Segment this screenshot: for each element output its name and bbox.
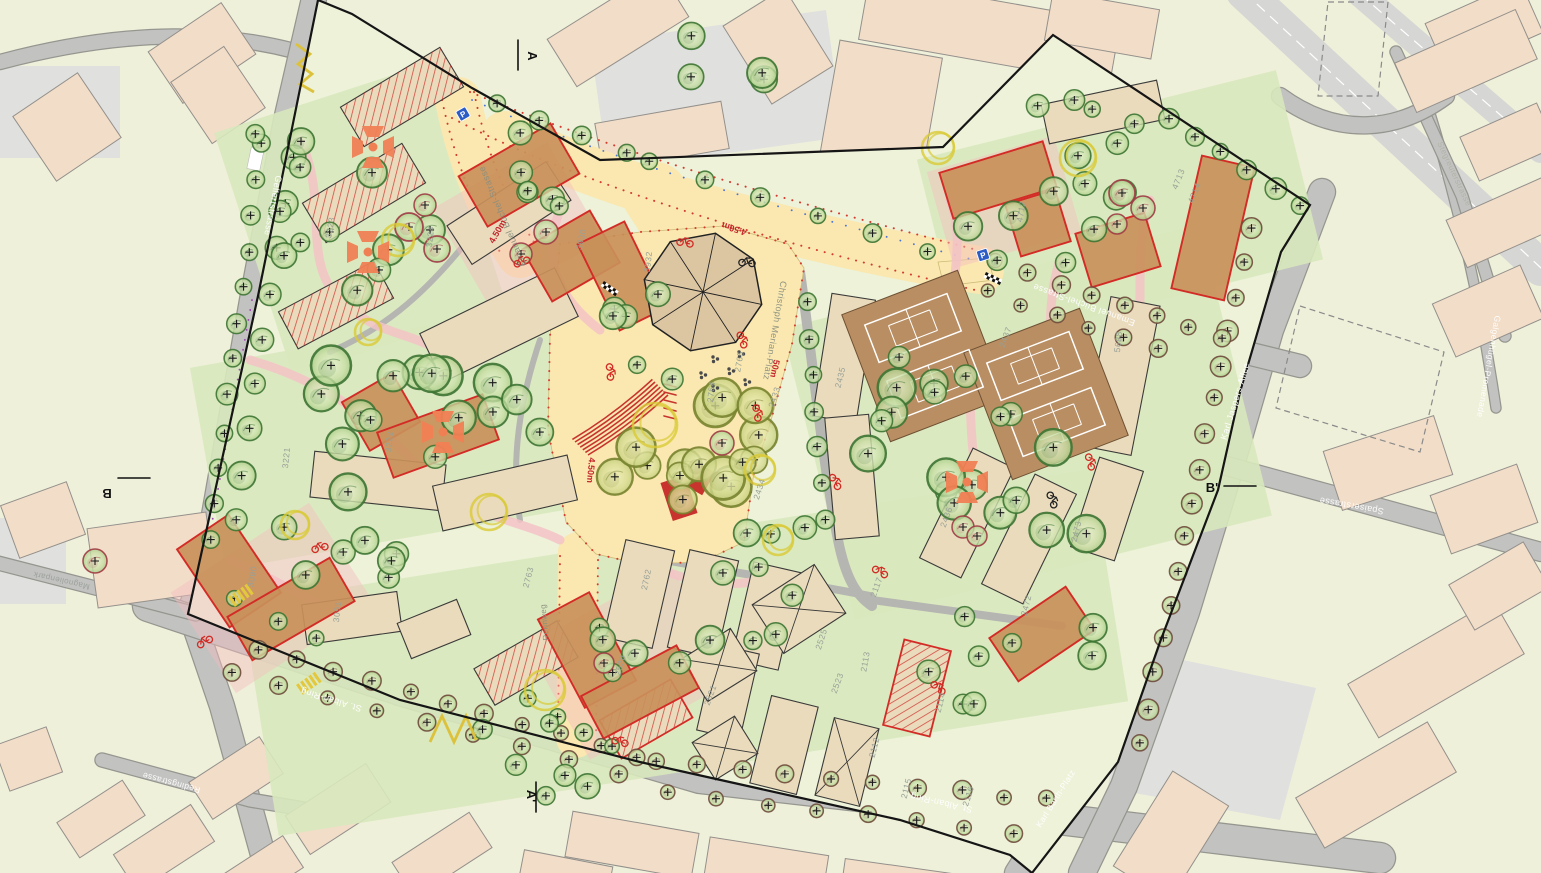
tree-icon (1084, 101, 1100, 117)
tree-icon (816, 510, 835, 529)
tree-icon (1189, 460, 1209, 480)
tree-icon (1107, 214, 1127, 234)
tree-icon (923, 381, 946, 404)
tree-icon (1079, 614, 1107, 642)
tree-icon (661, 785, 675, 799)
tree-icon (272, 515, 297, 540)
tree-icon (1106, 132, 1128, 154)
tree-icon (824, 772, 839, 787)
tree-icon (888, 346, 909, 367)
tree-icon (1078, 642, 1106, 670)
tree-icon (1003, 487, 1029, 513)
tree-icon (514, 738, 531, 755)
tree-icon (669, 485, 697, 513)
tree-icon (377, 360, 408, 391)
tree-icon (799, 293, 816, 310)
tree-icon (600, 303, 627, 330)
tree-icon (330, 473, 367, 510)
playground-center (439, 428, 448, 437)
tree-icon (805, 367, 821, 383)
playground-center (364, 248, 373, 257)
bench-dot (728, 372, 731, 375)
bench-dot (744, 383, 747, 386)
tree-icon (223, 664, 240, 681)
tree-icon (776, 765, 794, 783)
tree-icon (814, 475, 830, 491)
tree-icon (807, 436, 827, 456)
tree-shade (347, 286, 361, 300)
tree-icon (955, 607, 975, 627)
tree-shade (480, 377, 497, 394)
tree-icon (534, 220, 558, 244)
tree-icon (1082, 217, 1107, 242)
tree-icon (289, 157, 310, 178)
tree-shade (990, 508, 1004, 522)
bench-dot (704, 373, 707, 376)
tree-shade (507, 395, 520, 408)
tree-icon (1082, 322, 1095, 335)
tree-icon (962, 692, 986, 716)
tree-icon (541, 714, 559, 732)
tree-icon (917, 660, 940, 683)
tree-icon (575, 774, 600, 799)
tree-icon (669, 652, 691, 674)
tree-icon (793, 516, 816, 539)
tree-shade (709, 471, 728, 490)
tree-icon (696, 626, 725, 655)
bench-dot (699, 371, 702, 374)
tree-icon (244, 373, 265, 394)
tree-icon (969, 646, 989, 666)
tree-icon (997, 790, 1011, 804)
tree-icon (83, 549, 107, 573)
tree-shade (623, 441, 641, 459)
tree-icon (590, 627, 615, 652)
tree-shade (747, 429, 764, 446)
tree-icon (259, 283, 281, 305)
tree-icon (1026, 95, 1048, 117)
tree-shade (603, 471, 619, 487)
tree-icon (311, 345, 351, 385)
tree-icon (1214, 330, 1231, 347)
tree-icon (954, 212, 983, 241)
section-label: A (525, 51, 540, 61)
tree-icon (246, 125, 264, 143)
tree-icon (326, 428, 359, 461)
tree-icon (678, 22, 705, 49)
tree-icon (1195, 424, 1215, 444)
tree-icon (237, 416, 261, 440)
tree-icon (1210, 356, 1231, 377)
tree-icon (291, 233, 309, 251)
tree-icon (225, 509, 247, 531)
tree-icon (1005, 825, 1022, 842)
section-label: B (102, 486, 111, 501)
tree-shade (336, 486, 353, 503)
tree-icon (251, 328, 274, 351)
tree-icon (370, 704, 383, 717)
tree-icon (800, 330, 819, 349)
tree-shade (332, 439, 347, 454)
section-label: B' (1206, 480, 1218, 495)
tree-icon (439, 695, 456, 712)
tree-icon (505, 754, 526, 775)
tree-icon (696, 171, 713, 188)
tree-icon (981, 284, 994, 297)
tree-icon (554, 765, 576, 787)
tree-icon (987, 250, 1007, 270)
tree-icon (270, 613, 287, 630)
tree-icon (865, 775, 879, 789)
tree-icon (678, 64, 703, 89)
tree-shade (856, 448, 872, 464)
tree-icon (418, 713, 436, 731)
tree-icon (810, 208, 825, 223)
tree-icon (1109, 180, 1135, 206)
tree-shade (362, 168, 375, 181)
tree-icon (270, 677, 288, 695)
site-plan-map[interactable]: PPEmanuel Büchel-StrasseEmanuel Büchel-S… (0, 0, 1541, 873)
tree-icon (235, 278, 251, 294)
tree-icon (744, 632, 762, 650)
tree-icon (508, 121, 532, 145)
tree-icon (863, 224, 881, 242)
tree-icon (1050, 307, 1065, 322)
tree-icon (955, 365, 977, 387)
tree-shade (318, 359, 336, 377)
tree-icon (711, 561, 735, 585)
tree-icon (641, 153, 657, 169)
tree-icon (805, 403, 823, 421)
tree-icon (850, 436, 886, 472)
tree-icon (594, 653, 614, 673)
tree-icon (227, 314, 247, 334)
tree-icon (646, 282, 671, 307)
tree-icon (1056, 252, 1076, 272)
tree-shade (310, 389, 326, 405)
tree-icon (1228, 289, 1245, 306)
tree-icon (519, 181, 537, 199)
tree-icon (241, 206, 260, 225)
tree-icon (762, 799, 775, 812)
tree-icon (247, 171, 265, 189)
tree-icon (710, 431, 734, 455)
tree-icon (734, 519, 761, 546)
tree-icon (216, 425, 232, 441)
tree-icon (1064, 90, 1085, 111)
bench-dot (711, 355, 714, 358)
tree-icon (661, 368, 683, 390)
tree-icon (1149, 308, 1164, 323)
tree-icon (1035, 429, 1072, 466)
bench-dot (712, 360, 715, 363)
tree-icon (224, 349, 241, 366)
bench-dot (727, 367, 730, 370)
tree-icon (526, 418, 553, 445)
tree-icon (404, 684, 419, 699)
tree-shade (483, 407, 497, 421)
bench-dot (700, 376, 703, 379)
tree-icon (1019, 264, 1036, 281)
tree-icon (920, 244, 935, 259)
tree-icon (1029, 513, 1064, 548)
tree-icon (550, 197, 568, 215)
tree-icon (709, 791, 723, 805)
tree-icon (781, 584, 803, 606)
tree-icon (1125, 114, 1144, 133)
tree-icon (1241, 218, 1262, 239)
tree-shade (688, 459, 703, 474)
bench-dot (748, 380, 751, 383)
tree-icon (1132, 735, 1148, 751)
tree-icon (510, 161, 533, 184)
tree-icon (414, 194, 436, 216)
tree-icon (1014, 299, 1027, 312)
tree-icon (734, 761, 751, 778)
tree-icon (610, 765, 627, 782)
tree-shade (420, 368, 437, 385)
tree-icon (228, 462, 256, 490)
tree-shade (383, 371, 397, 385)
site-plan-canvas: PPEmanuel Büchel-StrasseEmanuel Büchel-S… (0, 0, 1541, 873)
tree-shade (752, 68, 766, 82)
tree-icon (967, 526, 987, 546)
tree-icon (1138, 699, 1159, 720)
tree-icon (292, 561, 320, 589)
tree-icon (502, 385, 532, 415)
tree-shade (1035, 525, 1051, 541)
tree-icon (413, 355, 450, 392)
tree-icon (309, 631, 324, 646)
tree-shade (1041, 442, 1057, 458)
tree-icon (1182, 493, 1203, 514)
tree-icon (575, 724, 593, 742)
tree-icon (241, 244, 258, 261)
tree-icon (1186, 128, 1205, 147)
tree-icon (749, 558, 768, 577)
tree-icon (378, 547, 405, 574)
tree-icon (810, 804, 823, 817)
tree-icon (688, 756, 705, 773)
bench-dot (743, 378, 746, 381)
tree-icon (991, 407, 1010, 426)
tree-icon (342, 275, 372, 305)
tree-icon (1131, 196, 1155, 220)
tree-icon (1175, 527, 1193, 545)
bench-dot (716, 357, 719, 360)
tree-icon (957, 821, 972, 836)
tree-icon (629, 356, 646, 373)
tree-icon (764, 623, 787, 646)
tree-icon (1040, 177, 1068, 205)
tree-icon (1181, 320, 1196, 335)
tree-icon (573, 126, 591, 144)
tree-icon (871, 410, 893, 432)
tree-icon (1149, 339, 1167, 357)
playground-center (963, 478, 972, 487)
tree-icon (751, 188, 770, 207)
tree-icon (363, 672, 382, 691)
tree-icon (1206, 390, 1222, 406)
playground-center (369, 143, 378, 152)
tree-icon (530, 111, 549, 130)
tree-icon (351, 527, 378, 554)
tree-icon (1236, 254, 1252, 270)
tree-icon (359, 409, 382, 432)
tree-icon (1003, 634, 1022, 653)
tree-icon (1117, 297, 1133, 313)
tree-icon (747, 58, 777, 88)
